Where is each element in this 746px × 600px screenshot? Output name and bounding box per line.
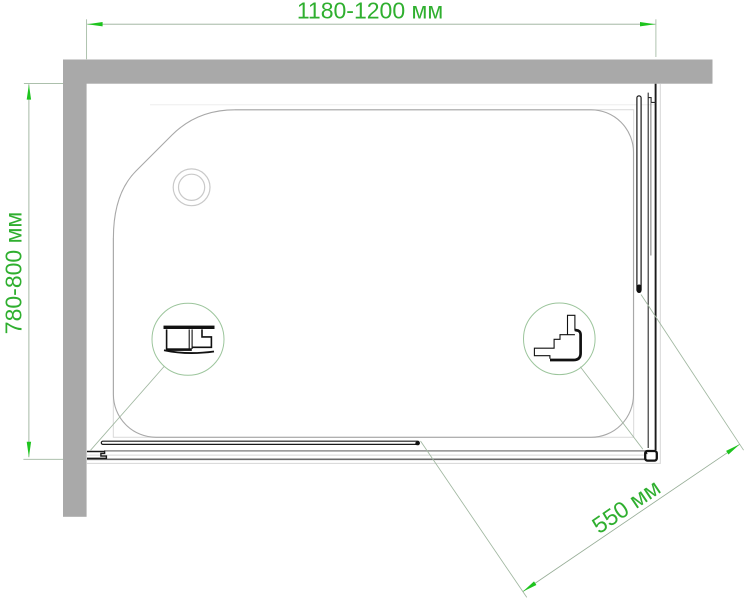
svg-text:780-800 мм: 780-800 мм xyxy=(1,212,27,334)
svg-text:1180-1200 мм: 1180-1200 мм xyxy=(297,0,443,23)
